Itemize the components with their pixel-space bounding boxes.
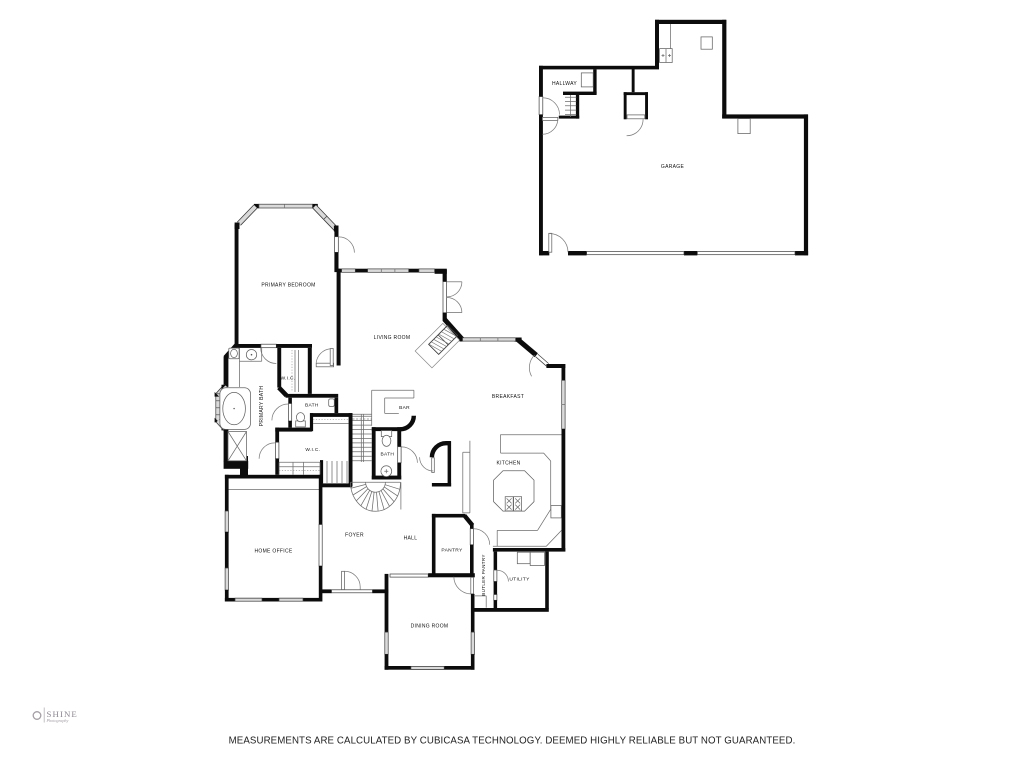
svg-text:HOME OFFICE: HOME OFFICE <box>254 549 292 555</box>
svg-text:KITCHEN: KITCHEN <box>496 461 520 467</box>
svg-text:HALL: HALL <box>404 536 418 542</box>
svg-text:BATH: BATH <box>380 452 394 458</box>
svg-text:MEASUREMENTS ARE CALCULATED BY: MEASUREMENTS ARE CALCULATED BY CUBICASA … <box>229 736 796 747</box>
svg-text:PRIMARY BATH: PRIMARY BATH <box>259 386 265 427</box>
svg-text:BATH: BATH <box>305 403 319 409</box>
svg-text:DINING ROOM: DINING ROOM <box>411 624 449 630</box>
svg-text:UTILITY: UTILITY <box>509 577 530 583</box>
svg-text:BREAKFAST: BREAKFAST <box>492 394 524 400</box>
svg-text:BAR: BAR <box>399 405 410 411</box>
svg-text:HALLWAY: HALLWAY <box>552 81 577 87</box>
svg-text:LIVING ROOM: LIVING ROOM <box>374 335 411 341</box>
svg-text:W.I.C.: W.I.C. <box>281 376 296 382</box>
svg-text:FOYER: FOYER <box>345 533 364 539</box>
svg-text:BUTLER PANTRY: BUTLER PANTRY <box>481 554 486 596</box>
svg-text:Photography: Photography <box>46 718 69 723</box>
svg-text:PRIMARY BEDROOM: PRIMARY BEDROOM <box>261 283 315 289</box>
svg-text:W.I.C.: W.I.C. <box>305 447 320 453</box>
svg-text:PANTRY: PANTRY <box>441 548 463 554</box>
svg-text:GARAGE: GARAGE <box>661 164 685 170</box>
